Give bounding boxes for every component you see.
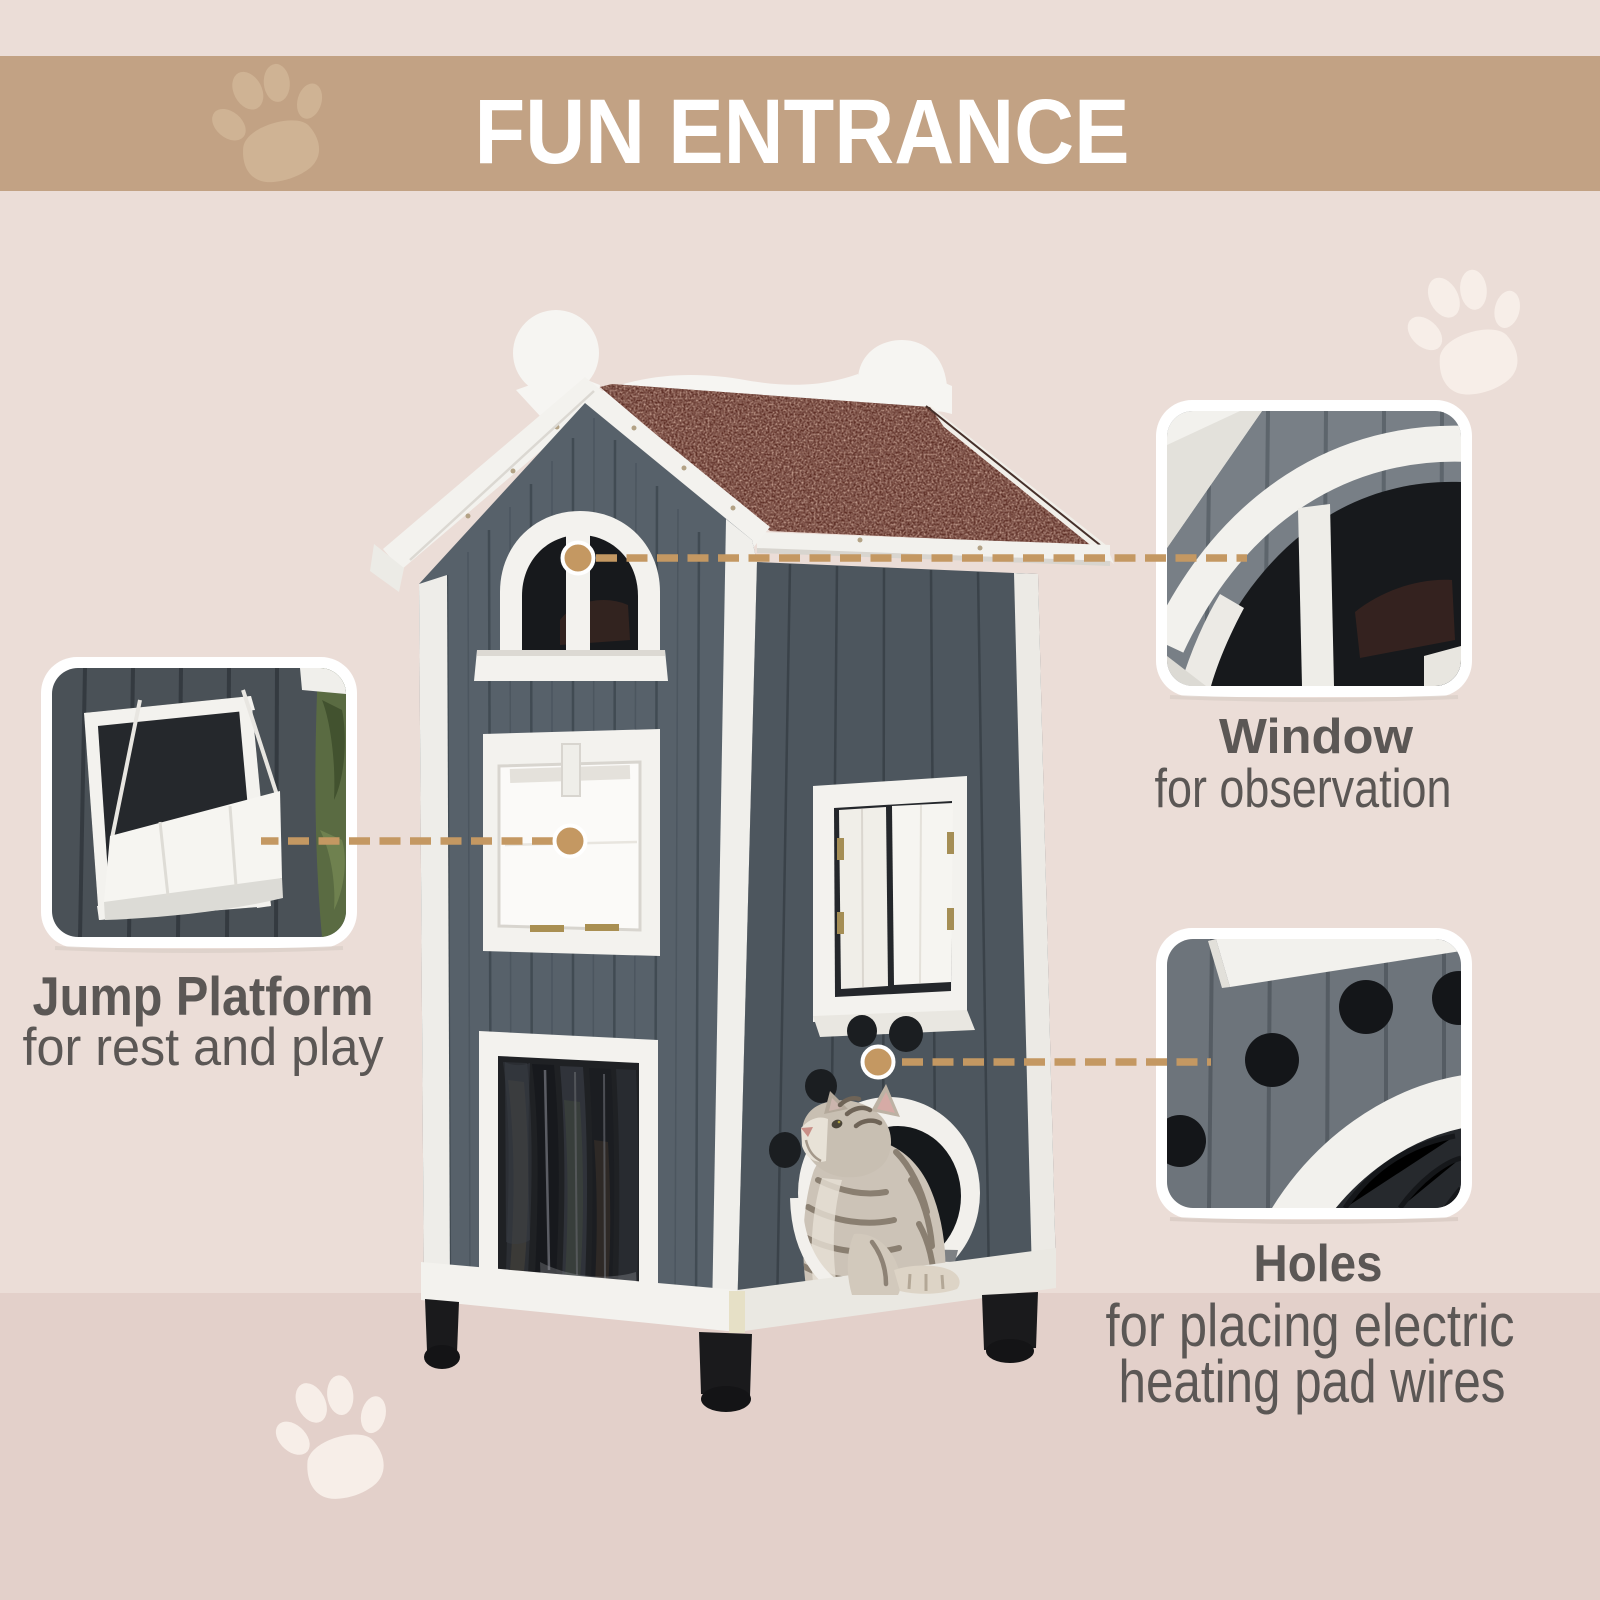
svg-text:Window: Window	[1219, 710, 1414, 764]
svg-text:for rest and play: for rest and play	[23, 1018, 384, 1077]
svg-text:FUN ENTRANCE: FUN ENTRANCE	[475, 81, 1130, 183]
svg-text:for observation: for observation	[1155, 757, 1452, 819]
svg-text:Holes: Holes	[1254, 1235, 1383, 1293]
svg-text:heating pad wires: heating pad wires	[1119, 1348, 1506, 1415]
